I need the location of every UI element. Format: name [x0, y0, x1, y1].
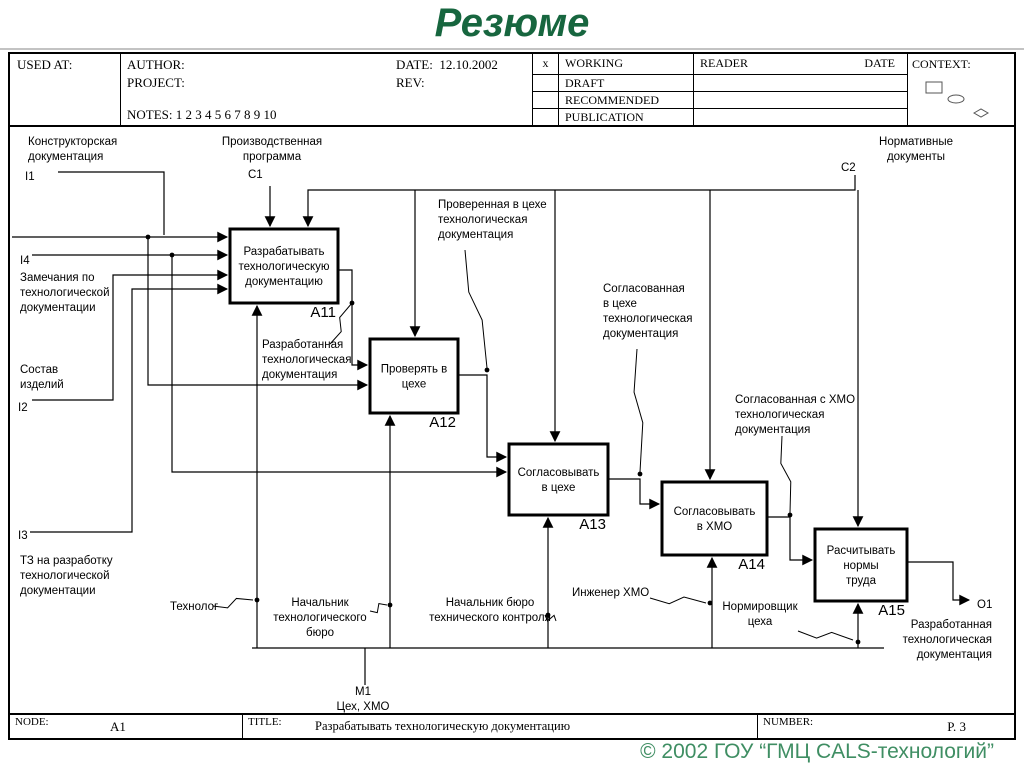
used-at-label: USED AT:	[17, 57, 72, 72]
footer-title-label: TITLE:	[248, 716, 282, 728]
label-nach-byuro-kontrolya: Начальник бюротехнического контроля	[429, 597, 551, 624]
number-cell: NUMBER: P. 3	[757, 715, 1014, 738]
title-cell: TITLE: Разрабатывать технологическую док…	[242, 715, 757, 738]
status-mark-column: x	[532, 54, 558, 125]
wire-i3-input-a11	[30, 289, 227, 532]
junction-dot	[485, 368, 490, 373]
status-draft: DRAFT	[559, 75, 693, 92]
junction-dot	[388, 603, 393, 608]
used-at-cell: USED AT:	[10, 54, 120, 125]
wire-a12-out-a13	[458, 375, 506, 457]
icom-c1: C1	[248, 169, 263, 181]
rev-label: REV:	[396, 75, 528, 93]
label-razrabotannaya-left: Разработаннаятехнологическаядокументация	[262, 339, 351, 381]
wire-a15-out-o1	[907, 562, 969, 600]
wire-a14-out-a15	[767, 517, 812, 560]
junction-dot	[170, 253, 175, 258]
node-cell: NODE: A1	[10, 715, 242, 738]
leader-soglasovannaya-khmo	[781, 436, 791, 513]
label-zamechaniya: Замечания потехнологическойдокументации	[20, 272, 110, 314]
leader-inzhener	[650, 597, 706, 604]
label-soglasovannaya-khmo: Согласованная с ХМОтехнологическаядокуме…	[735, 394, 855, 436]
icom-i1: I1	[25, 171, 35, 183]
label-tz: ТЗ на разработкутехнологическойдокумента…	[20, 555, 113, 597]
icom-i2: I2	[18, 402, 28, 414]
label-proverennaya: Проверенная в цехетехнологическаядокумен…	[438, 199, 547, 241]
junction-dot	[788, 513, 793, 518]
context-label: CONTEXT:	[912, 57, 971, 71]
label-soglasovannaya-tsekh: Согласованнаяв цехетехнологическаядокуме…	[603, 283, 692, 340]
wire-i1-label-elbow	[58, 172, 164, 235]
context-thumbnail-shapes	[908, 76, 1008, 124]
activity-code-a11: A11	[310, 304, 336, 321]
reader-label: READER	[700, 54, 748, 74]
date-field: DATE: 12.10.2002	[396, 57, 528, 75]
project-label: PROJECT:	[127, 75, 396, 93]
activity-box-a11: Разрабатыватьтехнологическуюдокументацию…	[230, 229, 338, 321]
status-label-column: WORKING DRAFT RECOMMENDED PUBLICATION	[558, 54, 693, 125]
label-nach-tekhbyuro: Начальниктехнологическогобюро	[273, 597, 366, 639]
icom-c2: C2	[841, 162, 856, 174]
slide-title: Резюме	[0, 0, 1024, 47]
activity-box-text: Разрабатыватьтехнологическуюдокументацию	[238, 246, 329, 288]
node-value: A1	[110, 719, 126, 735]
status-recommended: RECOMMENDED	[559, 92, 693, 109]
label-tsekh-khmo: Цех, ХМО	[337, 701, 390, 713]
number-label: NUMBER:	[763, 716, 813, 728]
idef0-footer: NODE: A1 TITLE: Разрабатывать технологич…	[10, 713, 1014, 738]
label-razrabotannaya-right: Разработаннаятехнологическаядокументация	[903, 619, 992, 661]
activity-code-a13: A13	[579, 516, 606, 533]
context-box-icon	[926, 82, 942, 93]
label-proizvodstvennaya: Производственнаяпрограмма	[222, 136, 322, 163]
author-label: AUTHOR:	[127, 57, 396, 75]
notes-label: NOTES: 1 2 3 4 5 6 7 8 9 10	[127, 107, 396, 123]
junction-dot	[638, 472, 643, 477]
idef0-diagram: Разрабатыватьтехнологическуюдокументацию…	[10, 127, 1014, 713]
icom-i3: I3	[18, 530, 28, 542]
status-working: WORKING	[559, 54, 693, 75]
activity-box-a12: Проверять вцехеA12	[370, 339, 458, 431]
junction-dot	[350, 301, 355, 306]
number-value: P. 3	[947, 719, 966, 735]
footer-title-value: Разрабатывать технологическую документац…	[315, 719, 570, 734]
activity-code-a12: A12	[429, 414, 456, 431]
icom-o1: O1	[977, 599, 992, 611]
context-diamond-icon	[974, 109, 988, 117]
working-x-mark: x	[533, 54, 558, 75]
wire-a13-out-a14	[608, 479, 659, 504]
author-project-cell: AUTHOR: PROJECT: NOTES: 1 2 3 4 5 6 7 8 …	[120, 54, 532, 125]
junction-dot	[146, 235, 151, 240]
activity-box-a14: Согласовыватьв ХМОA14	[662, 482, 767, 573]
idef0-sheet: USED AT: AUTHOR: PROJECT: NOTES: 1 2 3 4…	[8, 52, 1016, 740]
leader-proverennaya	[465, 250, 487, 368]
activity-box-a15: РасчитыватьнормытрудаA15	[815, 529, 907, 619]
context-ellipse-icon	[948, 95, 964, 103]
label-sostav: Составизделий	[20, 364, 64, 391]
reader-date-label: DATE	[864, 54, 895, 74]
date-value: 12.10.2002	[439, 57, 498, 72]
junction-dot	[708, 601, 713, 606]
idef0-header: USED AT: AUTHOR: PROJECT: NOTES: 1 2 3 4…	[10, 54, 1014, 127]
node-label: NODE:	[15, 716, 49, 728]
title-underline-rule	[0, 48, 1024, 50]
label-normativnye: Нормативныедокументы	[879, 136, 953, 163]
label-normirovshchik: Нормировщикцеха	[722, 601, 798, 628]
activity-box-a13: Согласовыватьв цехеA13	[509, 444, 608, 533]
status-publication: PUBLICATION	[559, 109, 693, 125]
label-inzhener-khmo: Инженер ХМО	[572, 587, 649, 599]
copyright-text: © 2002 ГОУ “ГМЦ CALS-технологий”	[640, 740, 994, 764]
leader-normirovshchik	[798, 631, 853, 640]
icom-i4: I4	[20, 255, 30, 267]
junction-dot	[856, 640, 861, 645]
wire-c2-control-main-a11	[308, 175, 855, 226]
label-tekhnolog: Технолог	[170, 601, 218, 613]
context-cell: CONTEXT:	[907, 54, 1010, 125]
leader-tekhnolog	[213, 598, 253, 607]
reader-column: READER DATE	[693, 54, 907, 125]
leader-nach-tekhbyuro	[370, 604, 387, 613]
activity-code-a15: A15	[878, 602, 905, 619]
label-konstruktorskaya: Конструкторскаядокументация	[28, 136, 117, 163]
junction-dot	[255, 598, 260, 603]
leader-soglasovannaya-tsekh	[634, 349, 643, 472]
icom-m1: M1	[355, 686, 371, 698]
activity-code-a14: A14	[738, 556, 765, 573]
